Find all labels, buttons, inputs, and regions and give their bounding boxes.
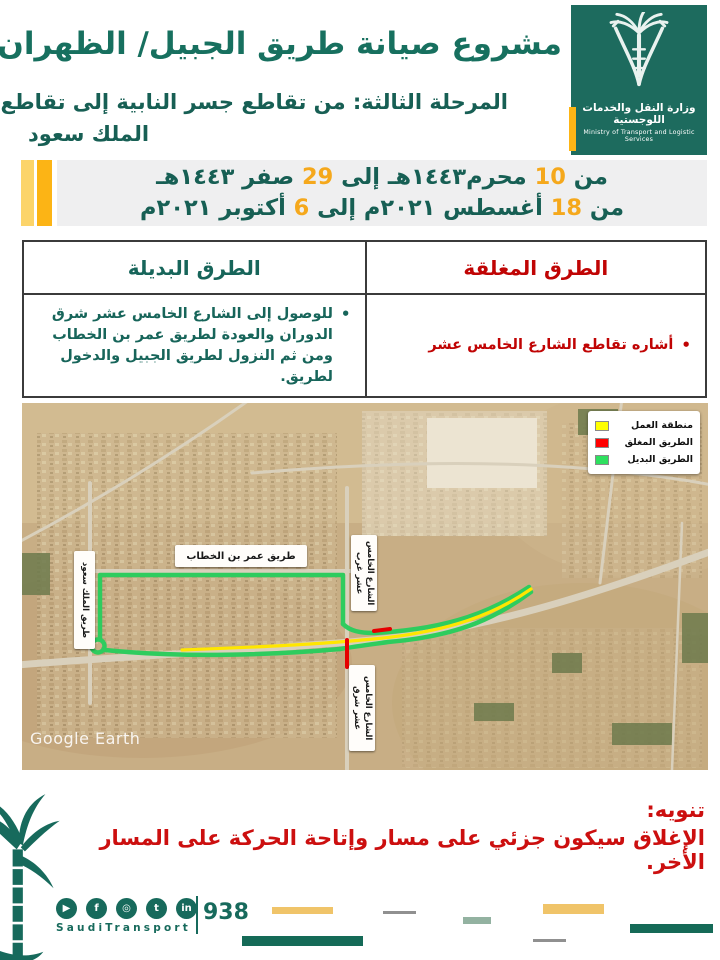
footer-divider [196,896,198,934]
alt-road-swatch [595,455,609,465]
road-maintenance-poster: مشروع صيانة طريق الجبيل/ الظهران المرحلة… [0,0,720,960]
instagram-icon[interactable]: ◎ [116,898,137,919]
palm-swords-emblem [604,12,674,96]
decorative-dash [463,917,491,924]
legend-row-alt-road: الطريق البديل [595,451,693,468]
decorative-dash [533,939,566,942]
hijri-date-line: من 10 محرم١٤٤٣هـ إلى 29 صفر ١٤٤٣هـ [156,162,608,193]
road-label-omar-bin-alkhattab: طريق عمر بن الخطاب [175,545,307,567]
facebook-icon[interactable]: f [86,898,107,919]
phase-subtitle-line2: الملك سعود [28,122,149,146]
notice-block: تنويه: الإغلاق سيكون جزئي على مسار وإتاح… [60,798,705,874]
social-handle: SaudiTransport [56,922,191,934]
accent-bar-light [21,160,34,226]
closed-road-swatch [595,438,609,448]
alternative-roads-header: الطرق البديلة [24,242,365,295]
linkedin-icon[interactable]: in [176,898,197,919]
alternative-roads-cell: • للوصول إلى الشارع الخامس عشر شرق الدور… [24,295,365,396]
closed-roads-header: الطرق المغلقة [365,242,706,295]
date-banner: من 10 محرم١٤٤٣هـ إلى 29 صفر ١٤٤٣هـ من 18… [57,160,707,226]
decorative-dash [383,911,416,914]
bullet-icon: • [341,304,351,324]
ministry-logo: وزارة النقل والخدمات اللوجستية Ministry … [571,5,707,155]
road-label-15th-street-east: الشارع الخامس عشر شرق [349,665,375,751]
closed-roads-cell: • أشاره تقاطع الشارع الخامس عشر [365,295,706,396]
roads-table: الطرق المغلقة الطرق البديلة • أشاره تقاط… [22,240,707,398]
decorative-dash [630,924,713,933]
contact-number: 938 [203,900,249,925]
legend-label: منطقة العمل [631,420,693,431]
google-earth-watermark: Google Earth [30,729,140,748]
logo-yellow-strip [569,107,576,151]
notice-body: الإغلاق سيكون جزئي على مسار وإتاحة الحرك… [60,826,705,874]
twitter-icon[interactable]: t [146,898,167,919]
legend-row-work-zone: منطقة العمل [595,417,693,434]
palm-tree-logo [0,790,72,960]
ministry-name-english: Ministry of Transport and Logistic Servi… [571,129,707,143]
satellite-map: منطقة العمل الطريق المغلق الطريق البديل … [22,403,708,770]
legend-label: الطريق البديل [627,454,693,465]
notice-title: تنويه: [60,798,705,822]
decorative-dash [543,904,604,914]
alternative-road-item: للوصول إلى الشارع الخامس عشر شرق الدوران… [38,304,333,388]
legend-row-closed-road: الطريق المغلق [595,434,693,451]
legend-label: الطريق المغلق [625,437,693,448]
map-legend: منطقة العمل الطريق المغلق الطريق البديل [588,411,700,474]
social-icons: ▶ f ◎ t in [56,898,197,919]
bullet-icon: • [681,335,691,355]
accent-bar-dark [37,160,52,226]
youtube-icon[interactable]: ▶ [56,898,77,919]
phase-subtitle-line1: المرحلة الثالثة: من تقاطع جسر النابية إل… [0,90,508,114]
road-label-15th-street-west: الشارع الخامس عشر غرب [351,535,377,611]
ministry-name-arabic: وزارة النقل والخدمات اللوجستية [571,102,707,126]
road-label-king-saud: طريق الملك سعود [74,551,95,649]
gregorian-date-line: من 18 أغسطس ٢٠٢١م إلى 6 أكتوبر ٢٠٢١م [140,193,624,224]
decorative-dash [272,907,333,914]
work-zone-swatch [595,421,609,431]
page-title: مشروع صيانة طريق الجبيل/ الظهران [0,26,562,62]
decorative-dash [242,936,363,946]
closed-road-item: أشاره تقاطع الشارع الخامس عشر [428,335,673,356]
